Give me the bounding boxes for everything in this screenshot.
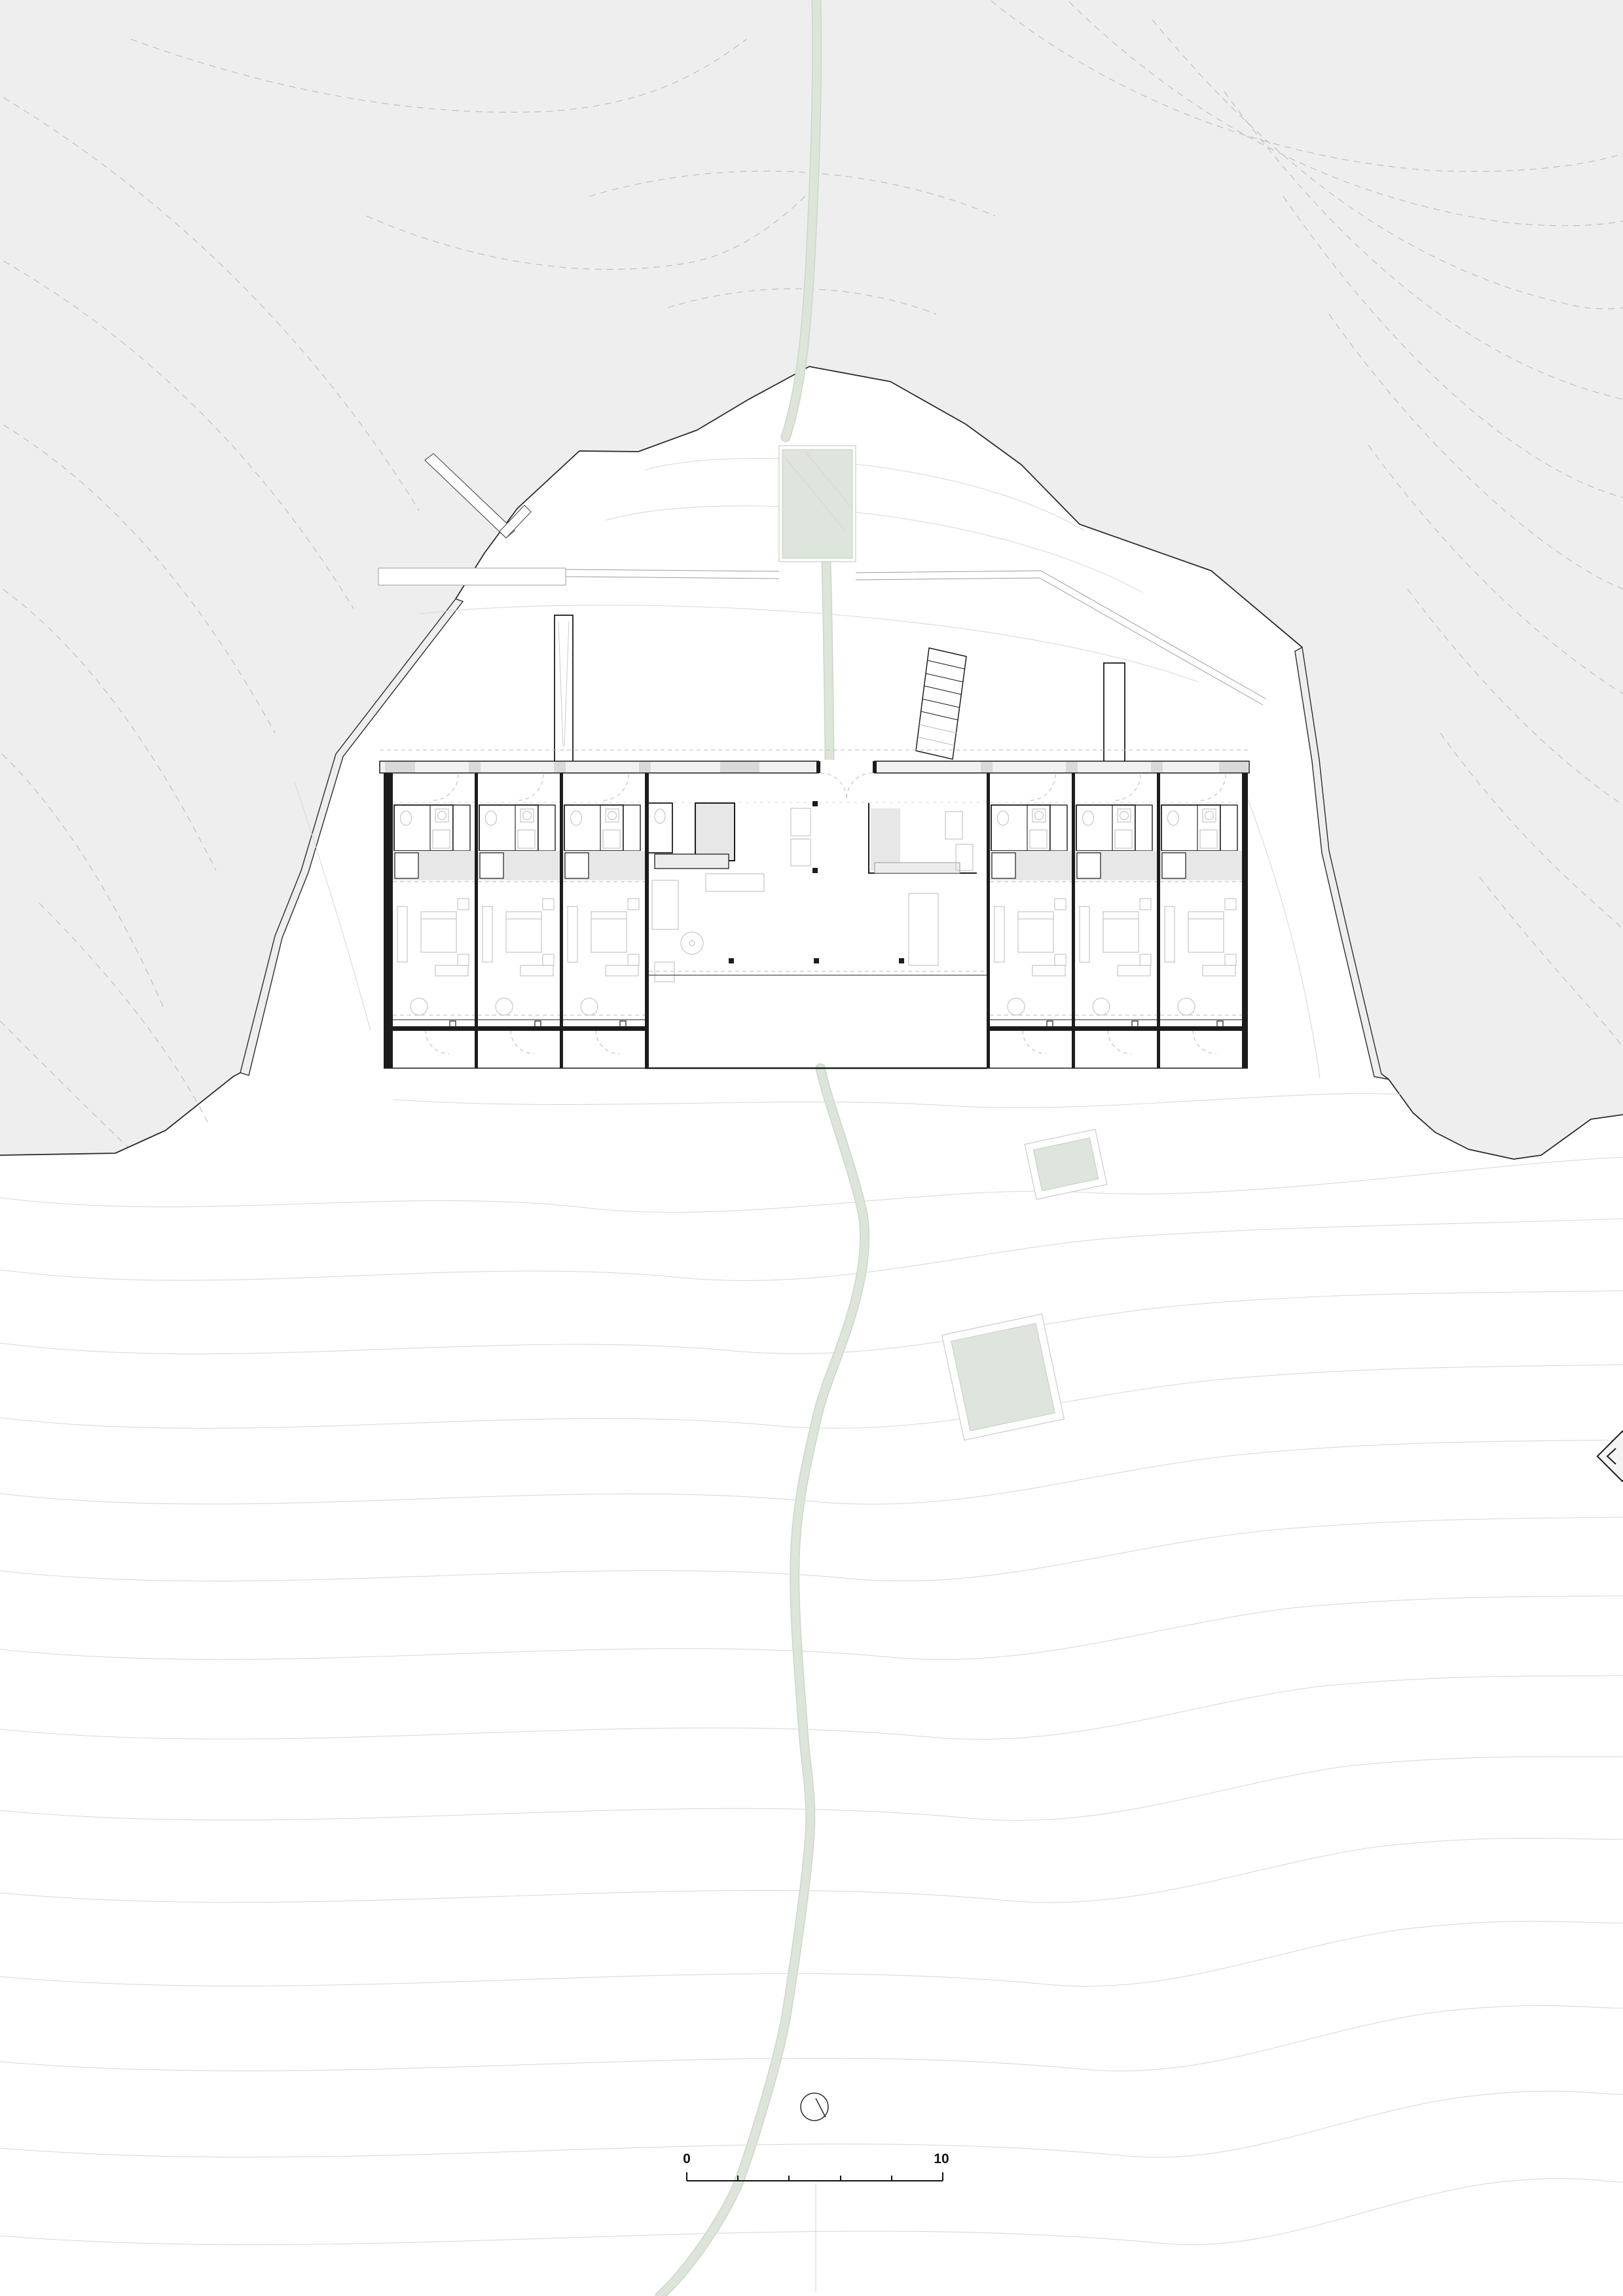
north-facade-band (380, 760, 1249, 774)
kitchen-island (909, 893, 938, 965)
upper-terrace-green (779, 446, 856, 562)
core-shaft (695, 803, 735, 861)
west-wall (384, 773, 390, 1068)
east-wall (1242, 773, 1248, 1068)
terrace-green-large (942, 1314, 1065, 1441)
scale-end-label: 10 (934, 2151, 949, 2166)
scale-start-label: 0 (683, 2151, 691, 2166)
site-plan: 0 10 (0, 0, 1623, 2296)
